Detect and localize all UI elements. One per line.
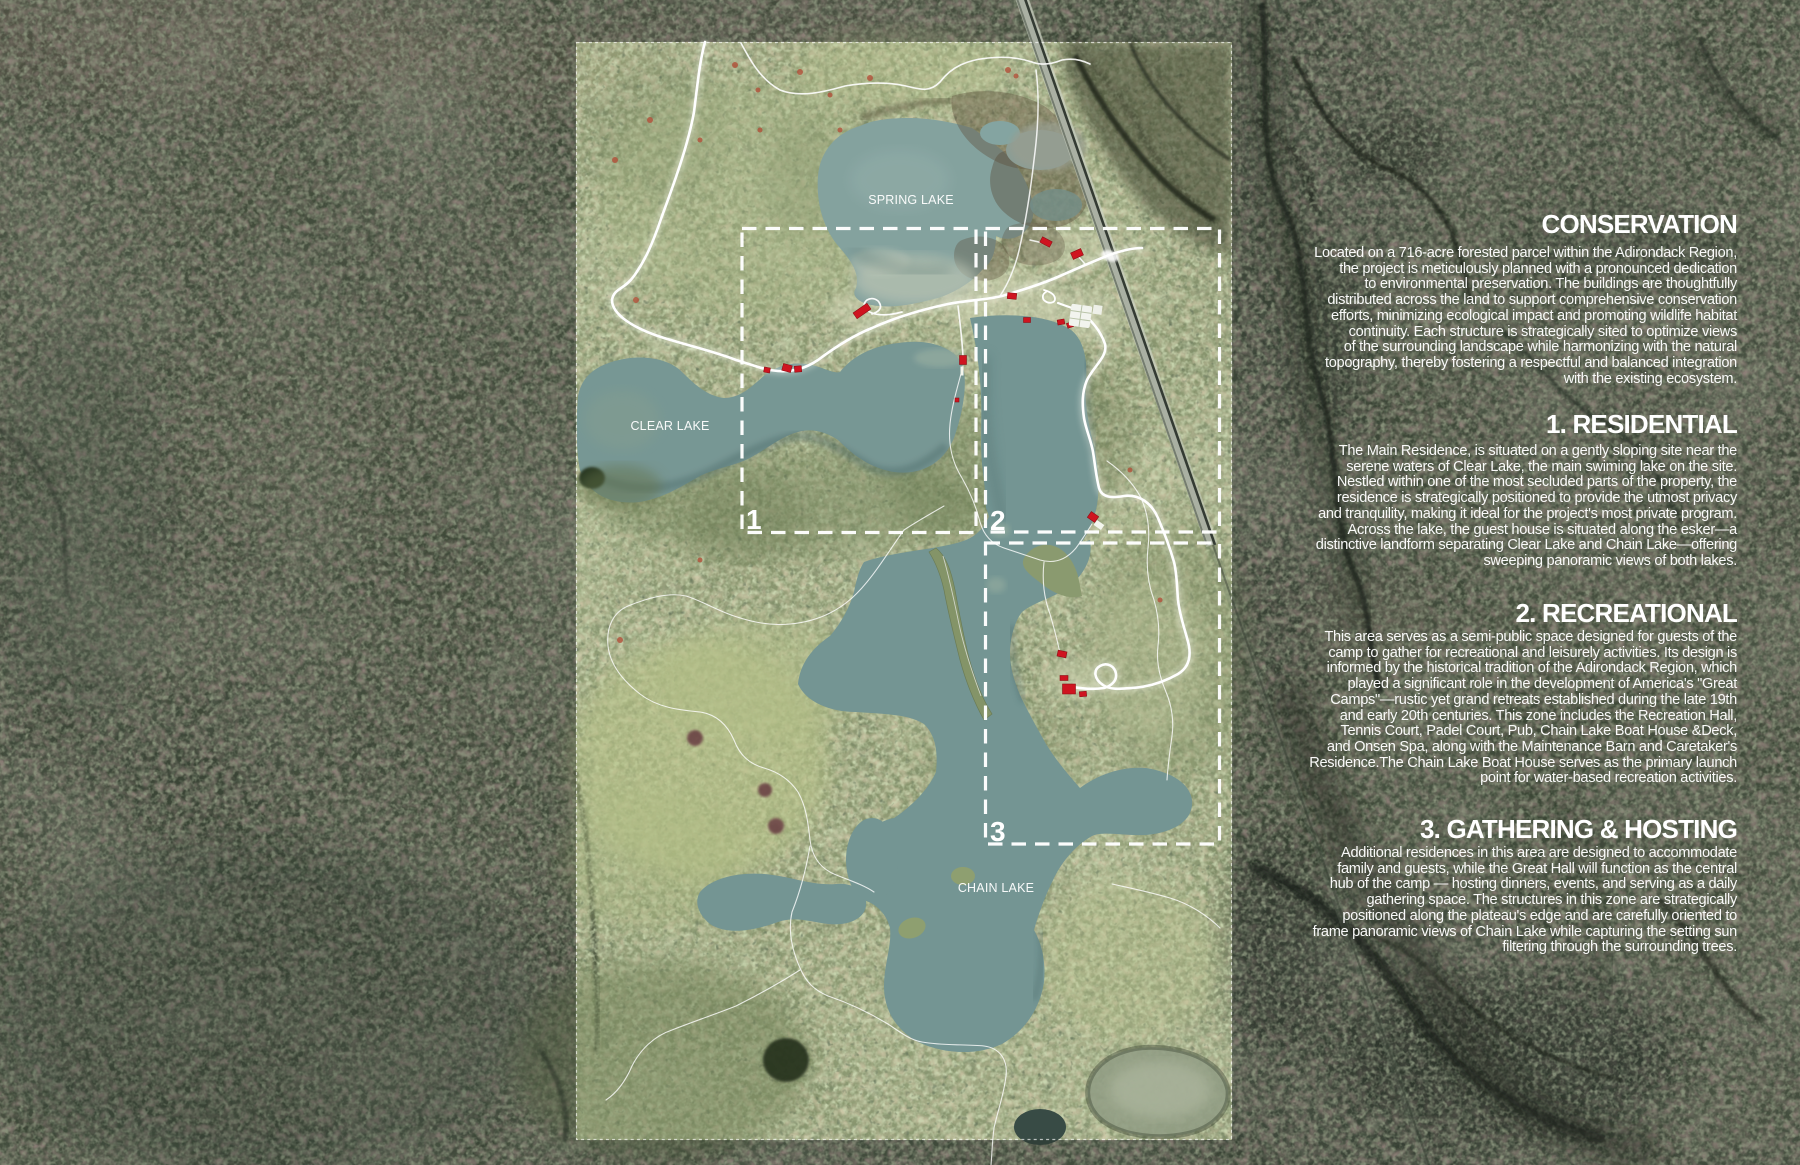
svg-text:CLEAR LAKE: CLEAR LAKE (630, 419, 709, 433)
svg-text:2: 2 (990, 505, 1006, 536)
svg-text:SPRING LAKE: SPRING LAKE (868, 193, 954, 207)
svg-text:CHAIN LAKE: CHAIN LAKE (958, 881, 1034, 895)
svg-text:3: 3 (990, 816, 1006, 847)
svg-text:1: 1 (746, 504, 762, 535)
